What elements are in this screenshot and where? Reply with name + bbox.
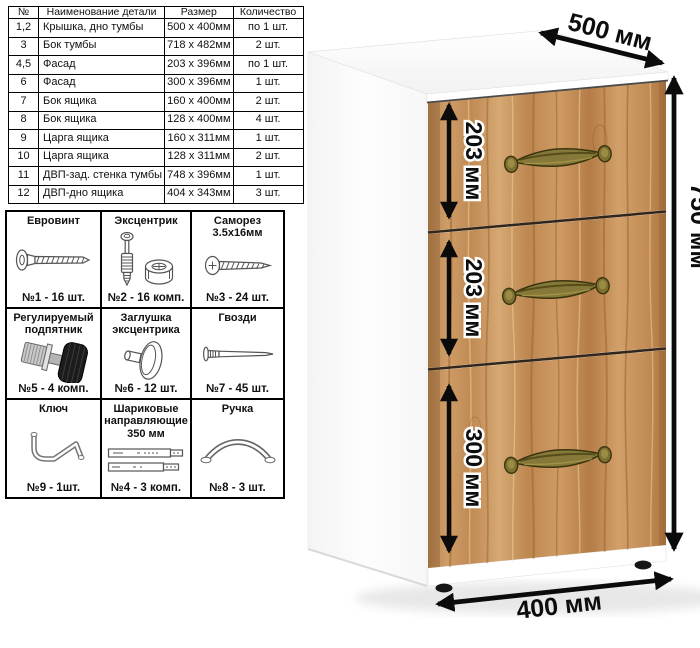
parts-header-row: № Наименование детали Размер Количество bbox=[9, 7, 304, 19]
parts-row: 1,2Крышка, дно тумбы500 х 400ммпо 1 шт. bbox=[9, 19, 304, 38]
eccentric-cam-icon bbox=[110, 230, 182, 290]
cabinet-side-panel bbox=[308, 52, 427, 586]
parts-row: 6Фасад300 х 396мм1 шт. bbox=[9, 74, 304, 93]
adjustable-foot-icon bbox=[16, 337, 92, 383]
col-header-num: № bbox=[9, 7, 39, 19]
col-header-size: Размер bbox=[165, 7, 233, 19]
hardware-cell-excentrik: Эксцентрик №2 - 16 комп. bbox=[101, 211, 191, 308]
hardware-cell-eurovint: Евровинт №1 - 16 шт. bbox=[6, 211, 101, 308]
parts-row: 12ДВП-дно ящика404 х 343мм3 шт. bbox=[9, 185, 304, 204]
dim-height-label: 750 мм bbox=[685, 183, 700, 269]
hardware-cell-gvozdi: Гвозди №7 - 45 шт. bbox=[191, 308, 284, 399]
parts-row: 7Бок ящика160 х 400мм2 шт. bbox=[9, 93, 304, 112]
parts-row: 4,5Фасад203 х 396ммпо 1 шт. bbox=[9, 56, 304, 75]
nail-icon bbox=[200, 344, 276, 364]
cabinet-drawing: 500 мм 750 мм 400 мм 203 мм 203 мм 300 м… bbox=[290, 0, 700, 648]
hardware-cell-samorez: Саморез 3.5х16мм №3 - 24 шт. bbox=[191, 211, 284, 308]
hardware-grid: Евровинт №1 - 16 шт. Эксцентрик bbox=[5, 210, 285, 499]
drawer-3-dim-label: 300 мм bbox=[461, 429, 487, 508]
hardware-cell-zaglushka: Заглушка эксцентрика №6 - 12 шт. bbox=[101, 308, 191, 399]
hardware-cell-ruchka: Ручка №8 - 3 шт. bbox=[191, 399, 284, 498]
parts-row: 3Бок тумбы718 х 482мм2 шт. bbox=[9, 37, 304, 56]
parts-row: 10Царга ящика128 х 311мм2 шт. bbox=[9, 148, 304, 167]
hardware-row: Ключ №9 - 1шт. Шариковые направляющие 35… bbox=[6, 399, 284, 498]
cabinet-foot bbox=[635, 561, 652, 570]
cabinet-foot bbox=[436, 584, 453, 593]
hardware-cell-podpyatnik: Регулируемый подпятник №5 - 4 комп. bbox=[6, 308, 101, 399]
hardware-row: Регулируемый подпятник №5 - 4 комп. Загл… bbox=[6, 308, 284, 399]
parts-row: 9Царга ящика160 х 311мм1 шт. bbox=[9, 130, 304, 149]
parts-row: 8Бок ящика128 х 400мм4 шт. bbox=[9, 111, 304, 130]
hardware-row: Евровинт №1 - 16 шт. Эксцентрик bbox=[6, 211, 284, 308]
parts-row: 11ДВП-зад. стенка тумбы748 х 396мм1 шт. bbox=[9, 167, 304, 186]
ball-slides-icon bbox=[107, 447, 185, 475]
drawer-1-dim-label: 203 мм bbox=[461, 122, 487, 201]
drawer-2-dim-label: 203 мм bbox=[461, 259, 487, 338]
drawer-edge-shade-right bbox=[659, 76, 666, 546]
hardware-cell-klyuch: Ключ №9 - 1шт. bbox=[6, 399, 101, 498]
drawer-edge-shade bbox=[428, 96, 440, 568]
handle-icon bbox=[199, 431, 277, 467]
hex-key-icon bbox=[20, 426, 88, 472]
cam-cover-icon bbox=[111, 337, 181, 383]
col-header-name: Наименование детали bbox=[39, 7, 165, 19]
self-tapping-screw-icon bbox=[203, 252, 273, 279]
euro-screw-icon bbox=[14, 246, 94, 274]
parts-table: № Наименование детали Размер Количество … bbox=[8, 6, 304, 204]
hardware-cell-napravlyayushchie: Шариковые направляющие 350 мм №4 - 3 ком… bbox=[101, 399, 191, 498]
assembly-sheet: № Наименование детали Размер Количество … bbox=[0, 0, 700, 648]
